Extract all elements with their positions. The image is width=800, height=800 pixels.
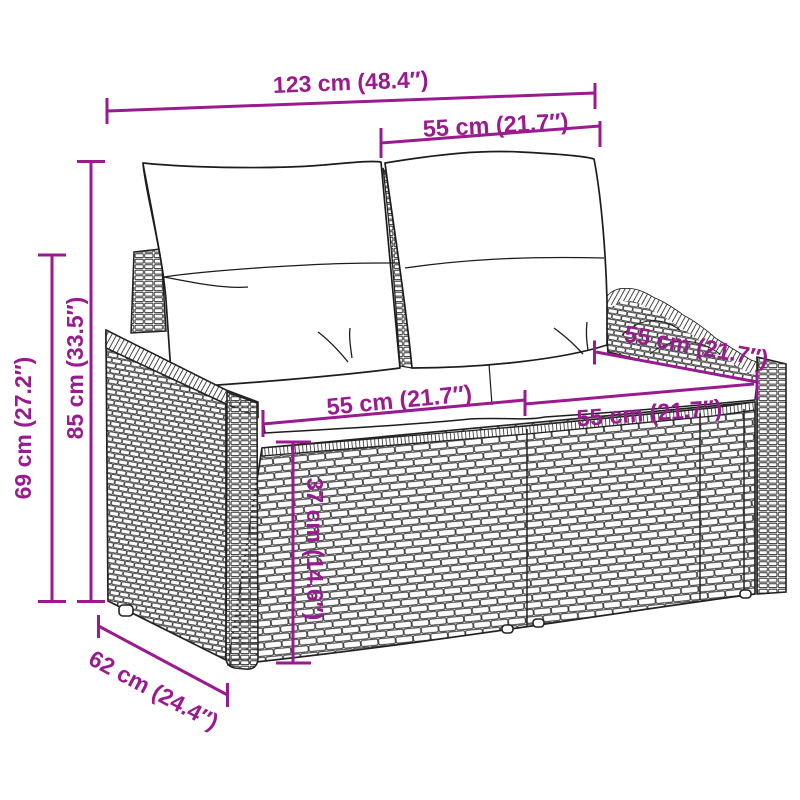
svg-text:85 cm (33.5″): 85 cm (33.5″) — [62, 297, 88, 440]
svg-text:69 cm (27.2″): 69 cm (27.2″) — [10, 357, 36, 500]
svg-text:37 cm (14.6″): 37 cm (14.6″) — [302, 478, 328, 621]
